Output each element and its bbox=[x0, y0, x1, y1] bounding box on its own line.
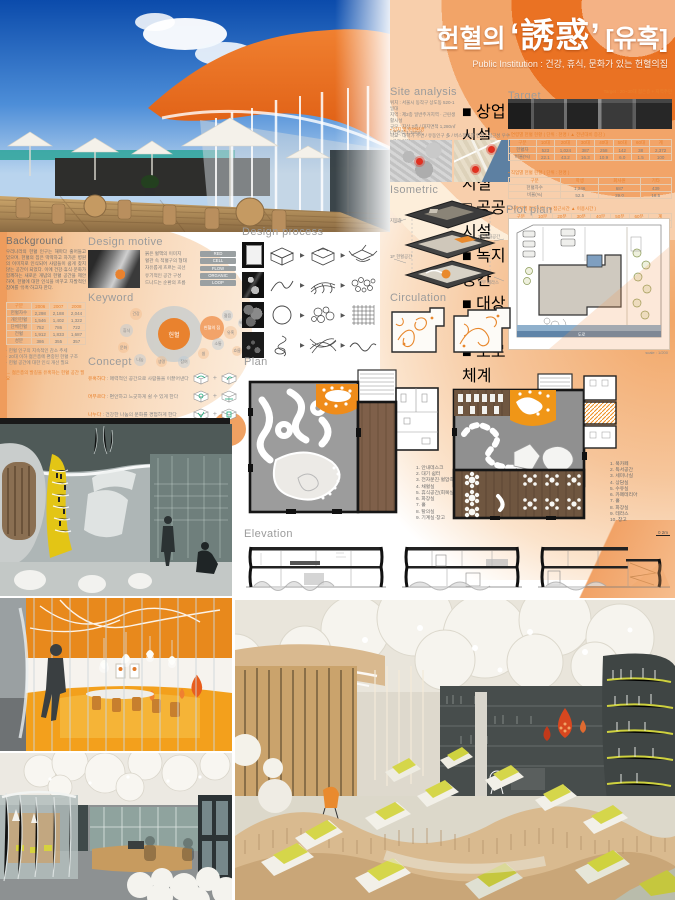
arrow-icon: ▶ bbox=[300, 312, 305, 319]
page-title: 헌혈의 ‘誘惑’ [유혹] bbox=[360, 8, 668, 57]
parking-cars bbox=[523, 229, 575, 257]
target-photo-strip bbox=[508, 99, 672, 129]
keyword-bubble: 유혹 bbox=[224, 326, 237, 339]
arrow-icon: ▶ bbox=[341, 282, 346, 289]
left-glass-room bbox=[0, 792, 78, 881]
column bbox=[475, 692, 487, 796]
process-row: ▶ ▶ bbox=[242, 270, 390, 300]
background-paragraph: 우리나라의 헌혈 인구는 해마다 줄어들고 있으며, 헌혈의 집은 딱딱하고 차… bbox=[6, 249, 86, 291]
process-sketch bbox=[348, 243, 378, 267]
concept-text: : 편안하고 느긋하게 쉴 수 있게 한다 bbox=[106, 395, 178, 400]
motive-label: 혈관 속 적혈구의 형태 bbox=[145, 258, 197, 264]
background-notes: · 헌혈 인구의 지속적인 감소 추세· 20대 이하 젊은층에 편중된 헌혈 … bbox=[6, 348, 86, 366]
plan-title: Plan bbox=[244, 356, 674, 368]
road-label: 도로 bbox=[578, 332, 585, 338]
plot-plan-title: Plot plan bbox=[506, 204, 674, 216]
iso-label: 2F 문화공간 bbox=[478, 234, 500, 240]
floor-plan-1f bbox=[246, 368, 442, 518]
data-table: 구분200620072008헌혈자수2,2982,1882,044개인헌혈1,5… bbox=[6, 302, 86, 345]
hero-terrace-render bbox=[0, 0, 390, 232]
target-table2: 구분학생회사원기타헌혈자수1,246687439비율(%)52.529.018.… bbox=[508, 177, 672, 199]
section-design-process: Design process ▶ ▶ ▶ ▶ ▶ bbox=[242, 226, 390, 358]
motive-item: 혈관 속 적혈구의 형태CELL bbox=[145, 257, 236, 264]
render-donation-room bbox=[0, 598, 232, 751]
arrow-icon: ▶ bbox=[341, 312, 346, 319]
motive-item: 자유롭게 흐르는 곡선FLOW bbox=[145, 265, 236, 272]
service-rooms bbox=[396, 388, 438, 450]
concept-cube bbox=[192, 371, 210, 385]
background-point: → 젊은층의 발길을 유혹하는 헌혈 공간 필요 bbox=[6, 370, 86, 382]
iso-label: 지붕층 bbox=[390, 218, 402, 224]
site-map-image bbox=[454, 140, 510, 182]
section-keyword: Keyword 헌혈 헌혈의 집 건강휴식문화나눔생명참여쉼소통유혹젊음흐름배려 bbox=[88, 292, 236, 358]
iso-label: 외부 테라스 bbox=[478, 280, 499, 286]
circulation-1f bbox=[390, 306, 446, 354]
design-process-title: Design process bbox=[242, 226, 390, 238]
concept-title: Concept bbox=[88, 356, 238, 368]
design-motive-title: Design motive bbox=[88, 236, 236, 248]
motive-label: 드나드는 순환의 흐름 bbox=[145, 280, 197, 286]
process-sketch bbox=[348, 273, 378, 297]
data-table: 구분10대20대30대40대50대60대계헌혈자5231,02438725814… bbox=[508, 139, 672, 161]
plan2-legend: 1. 북카페2. 독서공간3. 세미나실4. 상담실5. 수유실6. 카페테리아… bbox=[610, 462, 672, 524]
concept-cube bbox=[220, 371, 238, 385]
section-concept: Concept 유혹하다 : 매력적인 공간으로 사람들을 이끌어낸다 + 머무… bbox=[88, 356, 238, 416]
concept-accent: 유혹하다 bbox=[88, 377, 106, 382]
iso-label: 1F 헌혈공간 bbox=[390, 254, 412, 260]
concept-accent: 나누다 bbox=[88, 413, 101, 418]
arrow-icon: ▶ bbox=[300, 282, 305, 289]
target-note: Target : 20~30대 젊은층 + 지역주민 bbox=[604, 89, 672, 95]
process-photo-book bbox=[242, 242, 264, 268]
plus-sign: + bbox=[213, 375, 217, 382]
title-bracket: [유혹] bbox=[605, 25, 668, 53]
site-marker bbox=[488, 146, 495, 153]
render-lobby bbox=[0, 753, 232, 900]
title-prefix: 헌혈의 bbox=[437, 25, 506, 53]
floor-plan-2f bbox=[450, 372, 620, 522]
motive-tag: LOOP bbox=[200, 280, 236, 286]
process-sketch bbox=[348, 333, 378, 357]
process-sketch bbox=[267, 273, 297, 297]
target-bullet2: ▪ 직업별 헌혈 현황 ( 단위 : 천명 ) bbox=[508, 170, 569, 176]
render-main-lounge bbox=[235, 600, 675, 900]
motive-item: 붉은 혈액의 이미지RED bbox=[145, 250, 236, 257]
target-bullet1: ▪ 연령별 헌혈 현황 ( 단위 : 천명 / ▲ 전년대비 증감 ) bbox=[508, 132, 605, 138]
process-sketch bbox=[308, 243, 338, 267]
background-table: 구분200620072008헌혈자수2,2982,1882,044개인헌혈1,5… bbox=[6, 302, 86, 345]
plus-sign: + bbox=[213, 411, 217, 418]
render-gallery-interior bbox=[0, 424, 232, 596]
motive-item: 드나드는 순환의 흐름LOOP bbox=[145, 280, 236, 287]
title-subtitle: Public Institution : 건강, 휴식, 문화가 있는 헌혈의집 bbox=[360, 57, 668, 70]
elevation-drawing-1 bbox=[246, 541, 386, 591]
circulation-title: Circulation bbox=[390, 292, 512, 304]
motive-tag: FLOW bbox=[200, 266, 236, 272]
process-photo-vessel bbox=[242, 272, 264, 298]
process-photo-tangle bbox=[242, 332, 264, 358]
motive-items: 붉은 혈액의 이미지RED혈관 속 적혈구의 형태CELL자유롭게 흐르는 곡선… bbox=[145, 250, 236, 287]
arrow-icon: ▶ bbox=[300, 342, 305, 349]
elevation-scale: 0 2m bbox=[656, 530, 670, 536]
legend-line: 10. 창고 bbox=[610, 518, 672, 524]
wood-zone bbox=[358, 402, 396, 512]
section-site-analysis: Site analysis 위치 : 서울시 동작구 상도동 520-1 일대 … bbox=[390, 86, 510, 184]
process-row: ▶ ▶ bbox=[242, 300, 390, 330]
concept-cube bbox=[220, 389, 238, 403]
background-title: Background bbox=[6, 236, 86, 247]
center-counter bbox=[84, 490, 128, 537]
concept-row: 머무르다 : 편안하고 느긋하게 쉴 수 있게 한다 + bbox=[88, 387, 238, 405]
keyword-bubble: 휴식 bbox=[120, 324, 133, 337]
keyword-bubble: 흐름 bbox=[232, 346, 242, 356]
background-note: · 헌혈 공간에 대한 인식 개선 필요 bbox=[6, 360, 86, 366]
section-background: Background 우리나라의 헌혈 인구는 해마다 줄어들고 있으며, 헌혈… bbox=[6, 236, 86, 418]
arrow-icon: ▶ bbox=[341, 342, 346, 349]
process-rows: ▶ ▶ ▶ ▶ ▶ ▶ bbox=[242, 240, 390, 360]
site-analysis-title: Site analysis bbox=[390, 86, 510, 98]
title-main: ‘誘惑’ bbox=[510, 17, 601, 55]
process-sketch bbox=[267, 243, 297, 267]
plot-scale: scale : 1/200 bbox=[645, 350, 668, 355]
roof-slab bbox=[406, 201, 494, 228]
motive-label: 자유롭게 흐르는 곡선 bbox=[145, 265, 197, 271]
plus-sign: + bbox=[213, 393, 217, 400]
process-sketch bbox=[308, 333, 338, 357]
keyword-bubble: 문화 bbox=[118, 342, 129, 353]
side-rooms bbox=[584, 376, 616, 448]
motive-label: 유기적인 공간 구성 bbox=[145, 273, 197, 279]
concept-accent: 머무르다 bbox=[88, 395, 106, 400]
elevation-drawing-2 bbox=[402, 541, 522, 591]
circulation-2f bbox=[452, 306, 512, 354]
aerial-map-image bbox=[390, 140, 452, 182]
process-sketch bbox=[267, 333, 297, 357]
process-sketch bbox=[308, 273, 338, 297]
concept-rows: 유혹하다 : 매력적인 공간으로 사람들을 이끌어낸다 + 머무르다 : 편안하… bbox=[88, 369, 238, 423]
keyword-bubble: 건강 bbox=[130, 308, 142, 320]
section-isometric: Isometric bbox=[390, 184, 508, 292]
site-marker bbox=[472, 166, 479, 173]
keyword-bubble: 소통 bbox=[212, 338, 224, 350]
motive-item: 유기적인 공간 구성ORGANIC bbox=[145, 272, 236, 279]
motive-tag: CELL bbox=[200, 258, 236, 264]
lounge-amoeba bbox=[274, 452, 340, 499]
arrow-icon: ▶ bbox=[341, 252, 346, 259]
plot-plan-drawing bbox=[508, 218, 670, 350]
process-sketch bbox=[348, 303, 378, 327]
section-elevation: Elevation 0 2m bbox=[244, 528, 674, 596]
arrow-icon: ▶ bbox=[300, 252, 305, 259]
elevation-title: Elevation bbox=[244, 528, 674, 540]
concept-text: : 매력적인 공간으로 사람들을 이끌어낸다 bbox=[106, 377, 189, 382]
keyword-bubble: 젊음 bbox=[222, 310, 233, 321]
motive-tag: RED bbox=[200, 251, 236, 257]
section-design-motive: Design motive 붉은 혈액의 이미지RED혈관 속 적혈구의 형태C… bbox=[88, 236, 236, 290]
process-sketch bbox=[308, 303, 338, 327]
elevation-drawing-3 bbox=[538, 541, 670, 591]
concept-text: : 건강한 나눔의 문화를 경험하게 한다 bbox=[101, 413, 177, 418]
motive-tag: ORGANIC bbox=[200, 273, 236, 279]
isometric-title: Isometric bbox=[390, 184, 508, 196]
poster: 헌혈의 ‘誘惑’ [유혹] Public Institution : 건강, 휴… bbox=[0, 0, 675, 900]
section-circulation: Circulation bbox=[390, 292, 512, 358]
isometric-drawing bbox=[390, 197, 508, 291]
site-marker bbox=[416, 158, 423, 165]
process-row: ▶ ▶ bbox=[242, 240, 390, 270]
process-sketch bbox=[267, 303, 297, 327]
section-plot-plan: Plot plan bbox=[506, 204, 674, 354]
target-table1: 구분10대20대30대40대50대60대계헌혈자5231,02438725814… bbox=[508, 139, 672, 161]
keyword-title: Keyword bbox=[88, 292, 236, 304]
motive-photo-blood-drop bbox=[88, 250, 140, 288]
process-photo-cells bbox=[242, 302, 264, 328]
concept-cube bbox=[192, 389, 210, 403]
concept-row: 유혹하다 : 매력적인 공간으로 사람들을 이끌어낸다 + bbox=[88, 369, 238, 387]
title-block: 헌혈의 ‘誘惑’ [유혹] Public Institution : 건강, 휴… bbox=[360, 8, 668, 70]
data-table: 구분학생회사원기타헌혈자수1,246687439비율(%)52.529.018.… bbox=[508, 177, 672, 199]
side-table bbox=[258, 779, 292, 813]
section-plan: Plan bbox=[244, 356, 674, 530]
motive-label: 붉은 혈액의 이미지 bbox=[145, 251, 197, 257]
reception-desk bbox=[92, 845, 192, 872]
